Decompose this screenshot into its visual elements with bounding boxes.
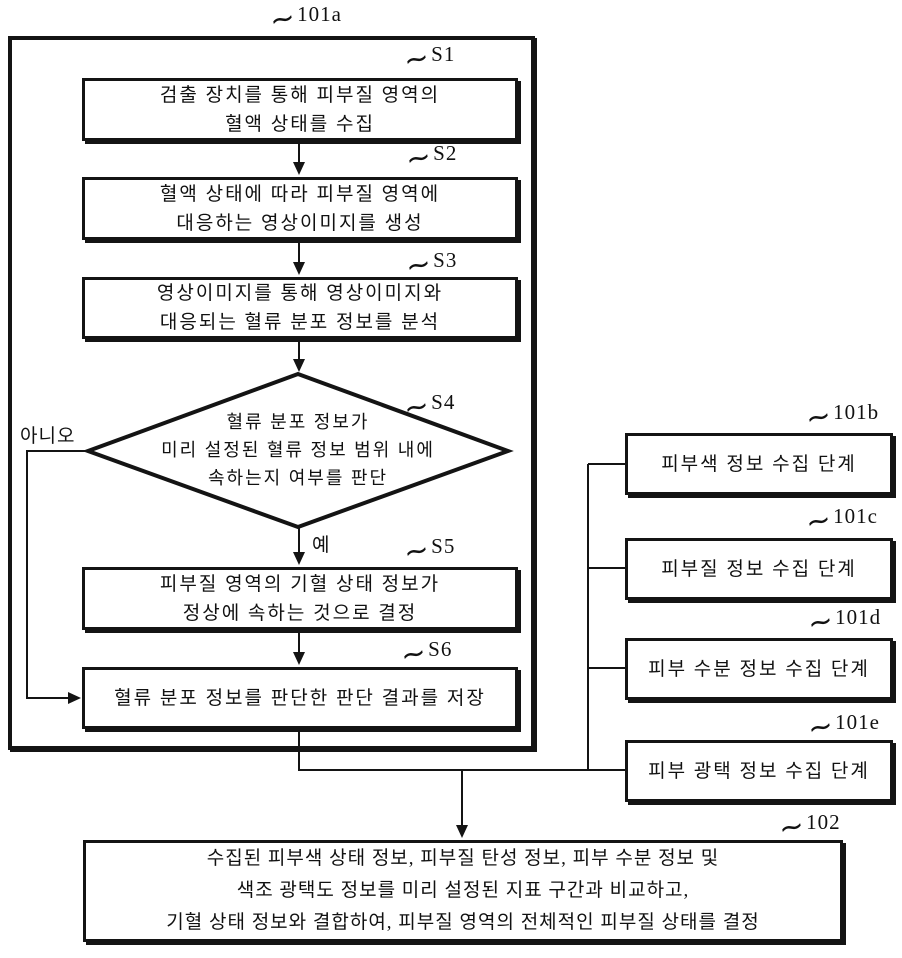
tilde-icon: ~ bbox=[269, 13, 295, 26]
side-step-box-101b: 피부색 정보 수집 단계 bbox=[625, 433, 893, 495]
ref-text: 101a bbox=[297, 2, 342, 27]
tilde-icon: ~ bbox=[805, 411, 831, 424]
step-text: 피부색 정보 수집 단계 bbox=[661, 450, 857, 479]
ref-label-101c: ~ 101c bbox=[806, 504, 878, 529]
ref-text: S4 bbox=[431, 390, 455, 415]
step-text: 수집된 피부색 상태 정보, 피부질 탄성 정보, 피부 수분 정보 및 bbox=[207, 843, 720, 875]
step-box-s6: 혈류 분포 정보를 판단한 판단 결과를 저장 bbox=[82, 667, 518, 729]
ref-text: 101e bbox=[835, 710, 880, 735]
tilde-icon: ~ bbox=[807, 616, 833, 629]
ref-label-102: ~ 102 bbox=[779, 810, 841, 835]
ref-label-101a: ~ 101a bbox=[270, 2, 342, 27]
tilde-icon: ~ bbox=[405, 152, 431, 165]
step-text: 대응하는 영상이미지를 생성 bbox=[176, 209, 423, 238]
ref-text: 102 bbox=[806, 810, 841, 835]
side-step-box-101d: 피부 수분 정보 수집 단계 bbox=[625, 638, 893, 700]
step-text: 검출 장치를 통해 피부질 영역의 bbox=[160, 81, 440, 110]
step-text: 정상에 속하는 것으로 결정 bbox=[183, 599, 418, 628]
ref-label-s3: ~ S3 bbox=[406, 248, 457, 273]
step-text: 혈류 분포 정보를 판단한 판단 결과를 저장 bbox=[114, 684, 486, 713]
side-step-box-101c: 피부질 정보 수집 단계 bbox=[625, 538, 893, 600]
ref-label-s5: ~ S5 bbox=[404, 534, 455, 559]
ref-label-s6: ~ S6 bbox=[401, 637, 452, 662]
ref-label-s1: ~ S1 bbox=[404, 42, 455, 67]
tilde-icon: ~ bbox=[400, 648, 426, 661]
ref-text: 101d bbox=[835, 605, 881, 630]
ref-text: 101b bbox=[833, 400, 879, 425]
tilde-icon: ~ bbox=[807, 721, 833, 734]
no-branch-label: 아니오 bbox=[20, 421, 75, 448]
ref-text: S3 bbox=[433, 248, 457, 273]
step-text: 기혈 상태 정보와 결합하여, 피부질 영역의 전체적인 피부질 상태를 결정 bbox=[166, 907, 759, 939]
tilde-icon: ~ bbox=[778, 821, 804, 834]
step-text: 피부 수분 정보 수집 단계 bbox=[648, 655, 870, 684]
step-text: 대응되는 혈류 분포 정보를 분석 bbox=[160, 308, 440, 337]
ref-label-s4: ~ S4 bbox=[404, 390, 455, 415]
step-box-s1: 검출 장치를 통해 피부질 영역의 혈액 상태를 수집 bbox=[82, 78, 518, 141]
ref-label-101b: ~ 101b bbox=[806, 400, 879, 425]
step-text: 혈액 상태에 따라 피부질 영역에 bbox=[160, 180, 440, 209]
side-step-box-101e: 피부 광택 정보 수집 단계 bbox=[625, 740, 893, 802]
step-text: 피부질 정보 수집 단계 bbox=[661, 555, 857, 584]
step-box-s5: 피부질 영역의 기혈 상태 정보가 정상에 속하는 것으로 결정 bbox=[82, 567, 518, 630]
ref-text: S1 bbox=[431, 42, 455, 67]
step-box-s2: 혈액 상태에 따라 피부질 영역에 대응하는 영상이미지를 생성 bbox=[82, 177, 518, 240]
patent-flowchart-figure: 검출 장치를 통해 피부질 영역의 혈액 상태를 수집 혈액 상태에 따라 피부… bbox=[0, 0, 902, 958]
ref-text: S6 bbox=[428, 637, 452, 662]
step-text: 속하는지 여부를 판단 bbox=[118, 464, 478, 492]
ref-text: S2 bbox=[433, 141, 457, 166]
tilde-icon: ~ bbox=[403, 401, 429, 414]
step-text: 영상이미지를 통해 영상이미지와 bbox=[157, 279, 443, 308]
tilde-icon: ~ bbox=[403, 53, 429, 66]
ref-text: S5 bbox=[431, 534, 455, 559]
arrowhead-into-102 bbox=[456, 825, 468, 838]
tilde-icon: ~ bbox=[805, 515, 831, 528]
ref-label-101e: ~ 101e bbox=[808, 710, 880, 735]
yes-branch-label: 예 bbox=[312, 530, 330, 557]
step-text: 피부질 영역의 기혈 상태 정보가 bbox=[160, 570, 440, 599]
ref-label-101d: ~ 101d bbox=[808, 605, 881, 630]
step-text: 피부 광택 정보 수집 단계 bbox=[648, 757, 870, 786]
tilde-icon: ~ bbox=[405, 259, 431, 272]
step-box-s3: 영상이미지를 통해 영상이미지와 대응되는 혈류 분포 정보를 분석 bbox=[82, 277, 518, 339]
ref-text: 101c bbox=[833, 504, 878, 529]
tilde-icon: ~ bbox=[403, 545, 429, 558]
ref-label-s2: ~ S2 bbox=[406, 141, 457, 166]
step-text: 색조 광택도 정보를 미리 설정된 지표 구간과 비교하고, bbox=[237, 875, 690, 907]
final-step-box-102: 수집된 피부색 상태 정보, 피부질 탄성 정보, 피부 수분 정보 및 색조 … bbox=[83, 840, 843, 942]
step-text: 미리 설정된 혈류 정보 범위 내에 bbox=[118, 436, 478, 464]
step-text: 혈액 상태를 수집 bbox=[225, 110, 375, 139]
